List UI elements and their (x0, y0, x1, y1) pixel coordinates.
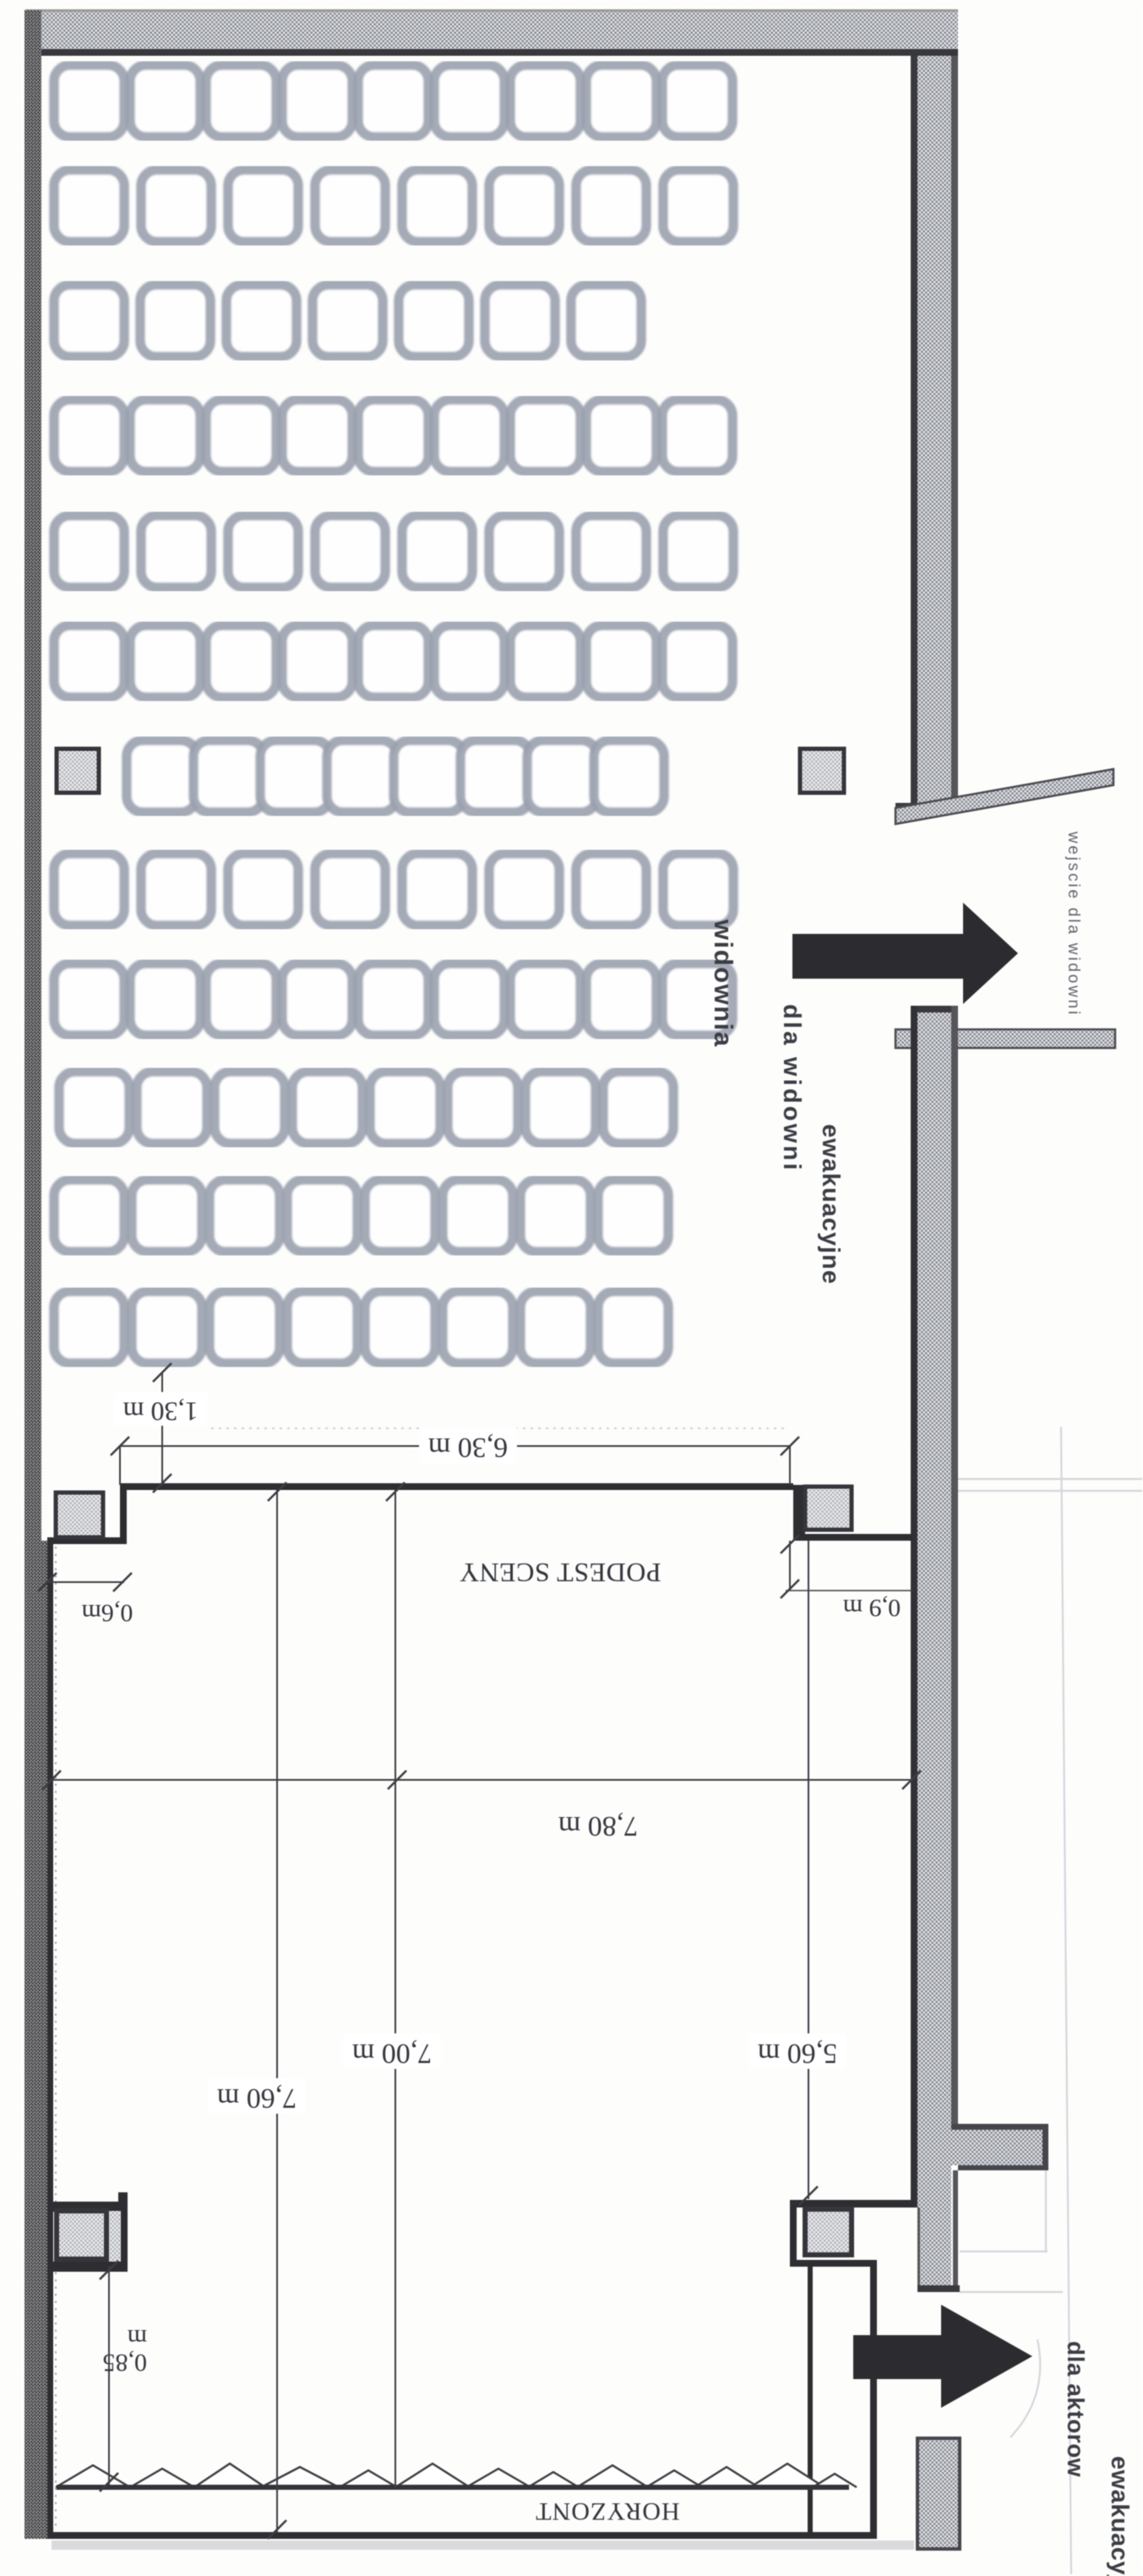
svg-text:dla widowni: dla widowni (778, 1004, 805, 1173)
svg-text:5,60 m: 5,60 m (758, 2038, 837, 2069)
svg-text:0,9 m: 0,9 m (843, 1594, 901, 1622)
svg-text:HORYZONT: HORYZONT (535, 2497, 679, 2525)
svg-text:PODEST SCENY: PODEST SCENY (459, 1558, 661, 1588)
svg-text:m: m (128, 2324, 147, 2352)
svg-text:wejscie dla widowni: wejscie dla widowni (1064, 831, 1082, 1017)
svg-text:7,80 m: 7,80 m (558, 1810, 638, 1842)
svg-text:1,30 m: 1,30 m (122, 1397, 198, 1427)
svg-text:7,00 m: 7,00 m (352, 2038, 432, 2069)
svg-text:widownia: widownia (709, 919, 738, 1048)
svg-text:6,30 m: 6,30 m (428, 1432, 508, 1463)
svg-text:ewakuacyjne: ewakuacyjne (817, 1124, 844, 1285)
svg-text:dla aktorow: dla aktorow (1063, 2341, 1089, 2477)
svg-text:ewakuacyjne: ewakuacyjne (1106, 2456, 1133, 2576)
svg-text:0,6m: 0,6m (82, 1599, 133, 1627)
svg-text:7,60 m: 7,60 m (217, 2082, 297, 2114)
